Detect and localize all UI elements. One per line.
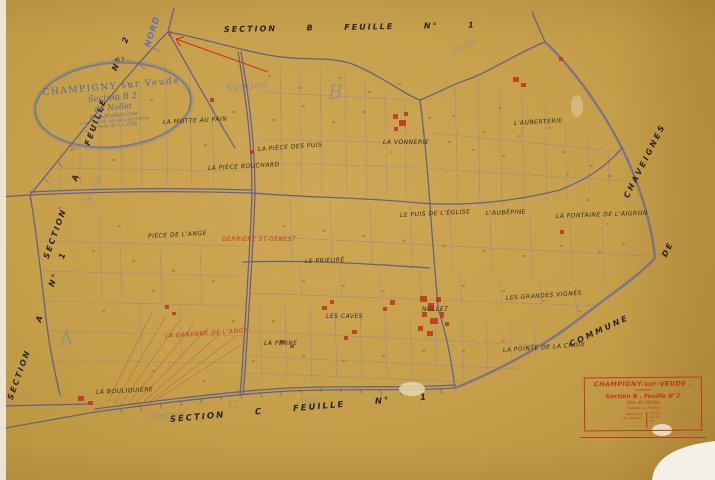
map-label: La Penne [264,340,298,347]
map-label: Le Prieuré [305,257,345,265]
watermark: 1ère [300,395,319,405]
north-arrow [176,37,268,72]
map-label: Derrière St-Genest [222,236,296,243]
cartouche-detail-lines: levé 18—1/250019—— [646,412,663,428]
cartouche-echelle: ( réduite au 2500e ) [585,405,701,410]
map-label: La Vonnerie [383,139,429,146]
watermark: C [228,398,237,412]
cartouche-left-notes: Réduction du cadastre [623,412,642,428]
watermark: B [328,80,343,104]
cartouche-detail: — [649,423,663,427]
cartouche-note-2: du cadastre [623,416,642,421]
map-label: L'Aubépine [486,209,526,217]
map-label: Nollet [422,306,448,313]
cartouche-footer: — · — [610,439,620,443]
map-label: Les Caves [326,313,363,320]
cartouche-rule [580,437,706,438]
cadastral-map-scan: SECTION B FEUILLE N° 1 SECTION C FEUILLE… [0,0,715,480]
title-cartouche: CHAMPIGNY-sur-VEUDE . cadastrée Section … [584,376,702,431]
